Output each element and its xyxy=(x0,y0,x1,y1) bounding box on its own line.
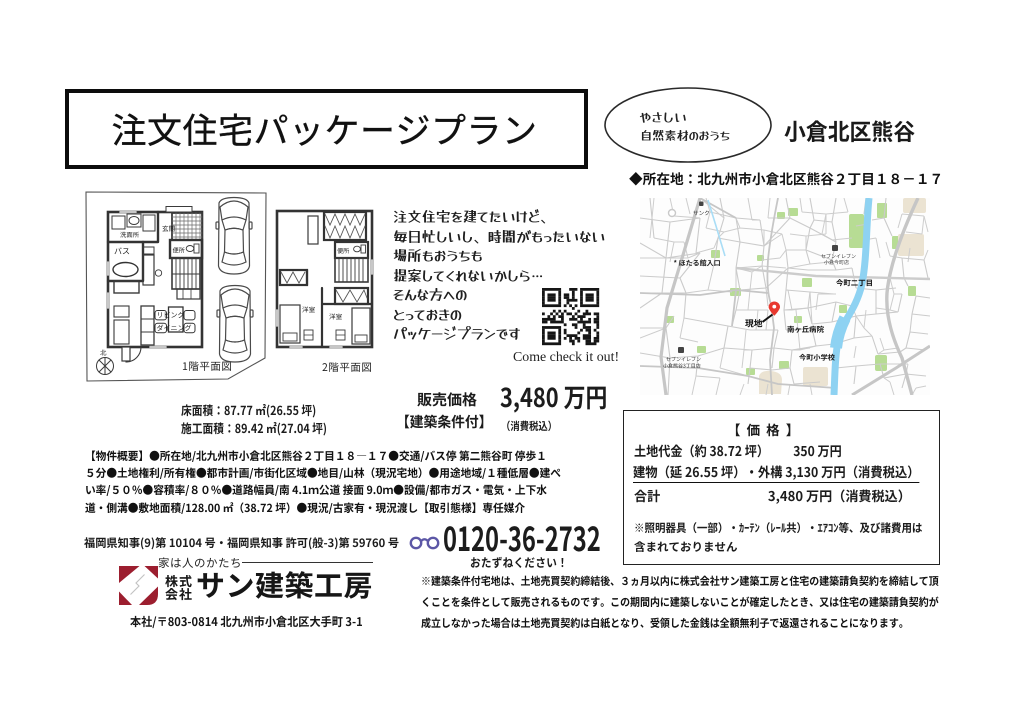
svg-text:2階平面図: 2階平面図 xyxy=(322,360,372,375)
svg-text:現地: 現地 xyxy=(745,317,763,330)
svg-text:リビング: リビング xyxy=(157,311,185,321)
svg-text:玄関: 玄関 xyxy=(162,223,176,233)
svg-text:洋室: 洋室 xyxy=(302,304,316,314)
svg-text:小倉熊谷3丁目店: 小倉熊谷3丁目店 xyxy=(663,363,701,370)
svg-text:サンク: サンク xyxy=(693,209,710,217)
svg-text:便所: 便所 xyxy=(173,246,185,255)
svg-text:今町小学校: 今町小学校 xyxy=(799,353,836,363)
svg-text:小倉今町店: 小倉今町店 xyxy=(824,259,849,266)
svg-text:ダイニング: ダイニング xyxy=(157,324,192,334)
svg-text:便所: 便所 xyxy=(337,246,349,255)
svg-text:バス: バス xyxy=(114,246,130,257)
svg-text:洋室: 洋室 xyxy=(329,311,343,321)
svg-text:* ほたる館入口: * ほたる館入口 xyxy=(674,259,721,269)
svg-text:洗面所: 洗面所 xyxy=(120,230,140,239)
svg-text:南ヶ丘病院: 南ヶ丘病院 xyxy=(787,324,825,335)
svg-text:1階平面図: 1階平面図 xyxy=(182,359,232,374)
svg-text:北: 北 xyxy=(100,347,107,357)
svg-text:今町二丁目: 今町二丁目 xyxy=(836,278,873,289)
